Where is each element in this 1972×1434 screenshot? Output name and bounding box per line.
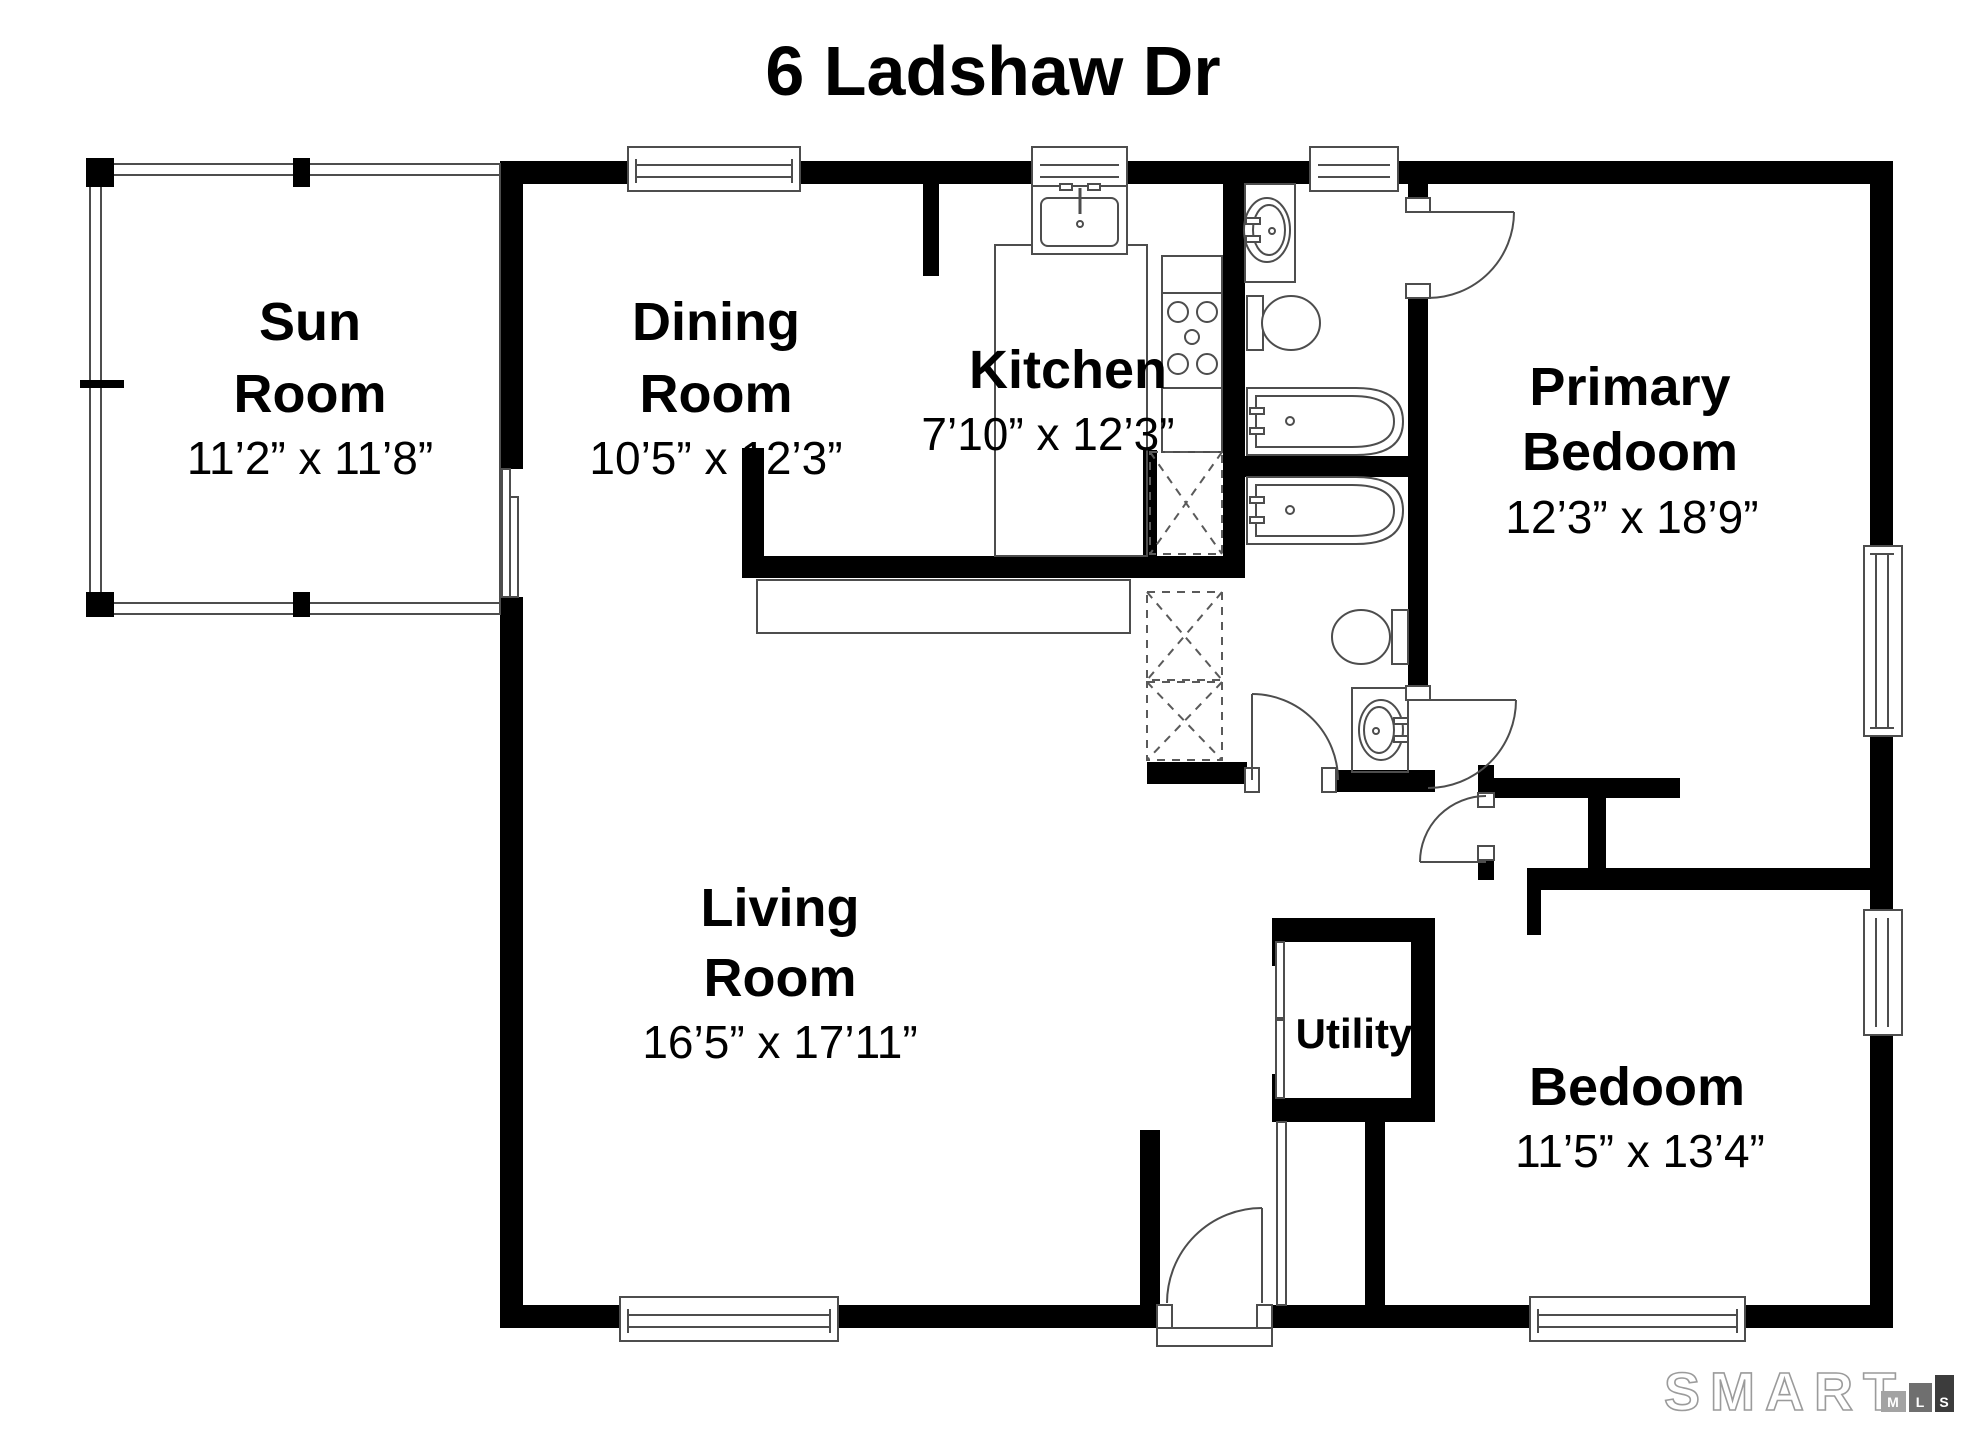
- toilet-1: [1247, 296, 1320, 350]
- floor-plan-page: 6 Ladshaw Dr Sun Room 11’2” x 11’8” Dini…: [0, 0, 1972, 1434]
- window-kitchen: [1032, 147, 1127, 191]
- sun-room-dims: 11’2” x 11’8”: [187, 432, 433, 484]
- kitchen-closets: [1147, 452, 1222, 760]
- logo-bar-l-letter: L: [1916, 1394, 1925, 1410]
- sun-room-mullion: [80, 380, 124, 388]
- kitchen-dims: 7’10” x 12’3”: [921, 408, 1174, 460]
- dining-room-dims: 10’5” x 12’3”: [589, 432, 842, 484]
- window-bedroom-south: [1530, 1297, 1745, 1341]
- bedroom-dims: 11’5” x 13’4”: [1515, 1125, 1765, 1177]
- page-title: 6 Ladshaw Dr: [765, 32, 1220, 110]
- door-bathroom1: [1406, 198, 1514, 298]
- toilet-2: [1332, 610, 1408, 664]
- primary-bedroom-label2: Bedoom: [1522, 422, 1738, 482]
- bathroom1-sink: [1244, 184, 1295, 282]
- sun-room-label: Sun: [259, 292, 361, 352]
- door-hall: [1245, 694, 1338, 792]
- bathroom2-sink: [1352, 688, 1408, 772]
- logo-brand-text: SMART: [1664, 1362, 1906, 1422]
- dining-room-label: Dining: [632, 292, 800, 352]
- logo-bar-s-letter: S: [1939, 1394, 1948, 1410]
- closet-box: [1147, 592, 1222, 680]
- bathtub-1: [1247, 388, 1403, 455]
- window-bedroom-east: [1864, 910, 1902, 1035]
- sun-room-post: [293, 158, 310, 187]
- sun-room-post: [293, 592, 310, 617]
- living-room-label: Living: [701, 878, 860, 938]
- bedroom-label: Bedoom: [1529, 1057, 1745, 1117]
- window-living: [620, 1297, 838, 1341]
- kitchen-label: Kitchen: [969, 340, 1167, 400]
- window-bath: [1310, 147, 1398, 191]
- sun-room-label2: Room: [234, 364, 387, 424]
- sun-room-post: [86, 592, 114, 617]
- utility-bifold-doors: [1276, 942, 1286, 1305]
- stove: [1162, 293, 1222, 388]
- closet-box: [1147, 682, 1222, 760]
- room-labels: Sun Room 11’2” x 11’8” Dining Room 10’5”…: [187, 292, 1765, 1177]
- logo-bar-m-letter: M: [1887, 1394, 1899, 1410]
- door-entry: [1157, 1208, 1272, 1346]
- closet-box: [1150, 452, 1222, 554]
- sunroom-slider: [502, 469, 518, 597]
- primary-bedroom-dims: 12’3” x 18’9”: [1505, 491, 1758, 543]
- smartmls-logo: SMART M L S: [1664, 1362, 1954, 1422]
- door-bedroom: [1420, 793, 1494, 862]
- floor-plan-drawing: 6 Ladshaw Dr Sun Room 11’2” x 11’8” Dini…: [0, 0, 1972, 1434]
- dining-room-label2: Room: [640, 364, 793, 424]
- window-dining: [628, 147, 800, 191]
- kitchen-sink: [1032, 184, 1127, 254]
- utility-label: Utility: [1296, 1010, 1413, 1057]
- living-room-dims: 16’5” x 17’11”: [642, 1016, 917, 1068]
- sun-room-post: [86, 158, 114, 187]
- primary-bedroom-label: Primary: [1529, 357, 1730, 417]
- window-primary-east: [1864, 546, 1902, 736]
- bathtub-2: [1247, 477, 1403, 544]
- living-room-label2: Room: [704, 948, 857, 1008]
